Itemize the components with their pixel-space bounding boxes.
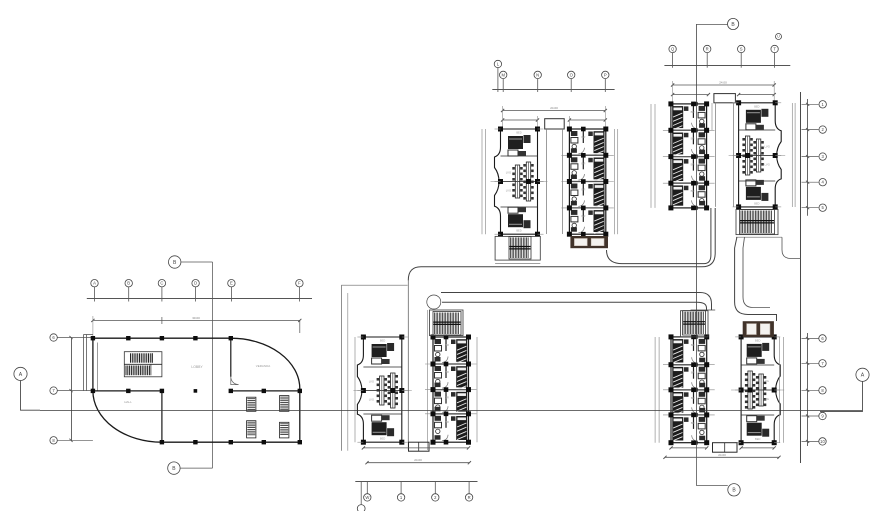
svg-text:C: C [160,281,163,286]
svg-text:BR: BR [691,110,695,114]
svg-text:B: B [127,281,130,286]
svg-text:BED: BED [380,437,385,441]
svg-text:LVG: LVG [764,397,769,401]
svg-text:BR: BR [581,188,585,192]
svg-text:24.00: 24.00 [719,81,727,85]
svg-text:S: S [740,47,743,52]
svg-text:W: W [365,495,369,500]
svg-text:N: N [536,72,539,77]
svg-text:BED: BED [754,201,759,205]
svg-text:BR: BR [581,214,585,218]
svg-text:BED: BED [755,338,760,342]
svg-text:BR: BR [445,420,449,424]
svg-text:LVG: LVG [506,189,511,193]
svg-text:VERANDA: VERANDA [256,364,271,368]
svg-text:BR: BR [691,136,695,140]
svg-text:BED: BED [755,437,760,441]
svg-text:BR: BR [445,370,449,374]
svg-text:LOBBY: LOBBY [191,365,203,369]
svg-text:BR: BR [581,135,585,139]
svg-text:T: T [773,47,776,52]
svg-text:E: E [230,281,233,286]
svg-text:A: A [19,372,23,378]
svg-text:BR: BR [581,161,585,165]
svg-text:LVG: LVG [506,171,511,175]
svg-text:24.00: 24.00 [414,458,422,462]
svg-text:BR: BR [691,421,695,425]
svg-text:LVG: LVG [369,380,374,384]
svg-text:LVG: LVG [765,145,770,149]
svg-text:BED: BED [516,229,521,233]
svg-text:BED: BED [754,104,759,108]
svg-text:BED: BED [380,339,385,343]
svg-text:30.00: 30.00 [192,316,200,320]
svg-text:LVG: LVG [369,398,374,402]
svg-text:BED: BED [516,131,521,135]
svg-text:A: A [93,281,96,286]
svg-text:HALL: HALL [124,400,132,404]
svg-text:BR: BR [691,189,695,193]
svg-text:10: 10 [820,439,825,444]
svg-text:BR: BR [691,163,695,167]
svg-text:LVG: LVG [764,379,769,383]
svg-text:R: R [706,47,709,52]
svg-text:LVG: LVG [765,163,770,167]
svg-text:BR: BR [691,343,695,347]
svg-text:A: A [861,373,865,379]
svg-text:BR: BR [445,396,449,400]
svg-text:P: P [604,72,607,77]
svg-text:D: D [194,281,197,286]
svg-text:BR: BR [691,396,695,400]
svg-text:F: F [298,281,301,286]
svg-text:BR: BR [691,371,695,375]
svg-text:M: M [501,72,505,77]
svg-text:24.00: 24.00 [550,106,558,110]
svg-text:R: R [468,495,471,500]
svg-text:BR: BR [445,343,449,347]
svg-text:24.00: 24.00 [718,453,726,457]
